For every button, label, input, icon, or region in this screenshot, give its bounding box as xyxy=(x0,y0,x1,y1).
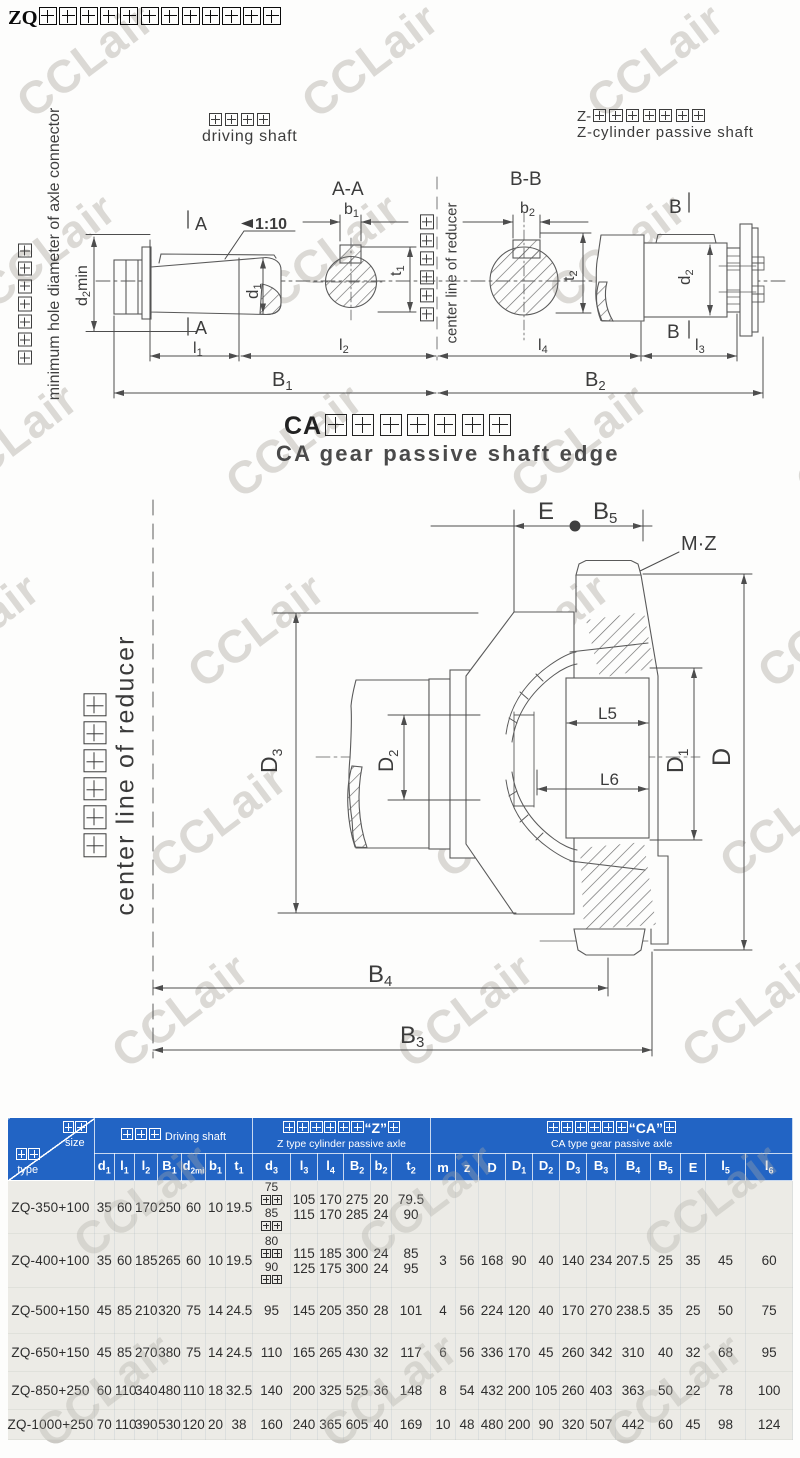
svg-text:A: A xyxy=(195,318,207,338)
svg-text:b2: b2 xyxy=(520,200,535,219)
svg-text:B: B xyxy=(667,322,680,343)
svg-text:B-B: B-B xyxy=(510,169,542,190)
svg-text:D1: D1 xyxy=(662,748,691,773)
svg-text:d1: d1 xyxy=(243,283,264,299)
svg-text:d2: d2 xyxy=(675,269,696,285)
svg-text:A-A: A-A xyxy=(332,179,364,200)
svg-text:M·Z: M·Z xyxy=(681,533,717,555)
svg-text:b1: b1 xyxy=(344,201,359,220)
svg-text:l1: l1 xyxy=(193,340,203,359)
svg-text:t1: t1 xyxy=(388,265,407,276)
svg-text:B2: B2 xyxy=(585,369,606,393)
svg-text:B4: B4 xyxy=(368,961,392,990)
svg-text:L6: L6 xyxy=(600,770,619,789)
svg-text:l2: l2 xyxy=(339,337,349,356)
svg-text:D: D xyxy=(708,748,736,766)
svg-text:d2min: d2min xyxy=(74,265,93,306)
svg-text:B3: B3 xyxy=(400,1022,424,1051)
svg-text:B1: B1 xyxy=(272,369,293,393)
svg-text:E: E xyxy=(538,498,554,525)
svg-text:B: B xyxy=(669,197,682,218)
svg-text:l3: l3 xyxy=(695,337,705,356)
svg-text:L5: L5 xyxy=(598,704,617,723)
svg-text:B5: B5 xyxy=(593,498,617,527)
svg-text:A: A xyxy=(195,214,207,234)
svg-text:D3: D3 xyxy=(256,748,285,773)
svg-text:1:10: 1:10 xyxy=(255,216,287,233)
svg-text:l4: l4 xyxy=(538,337,548,356)
svg-text:t2: t2 xyxy=(561,270,580,281)
